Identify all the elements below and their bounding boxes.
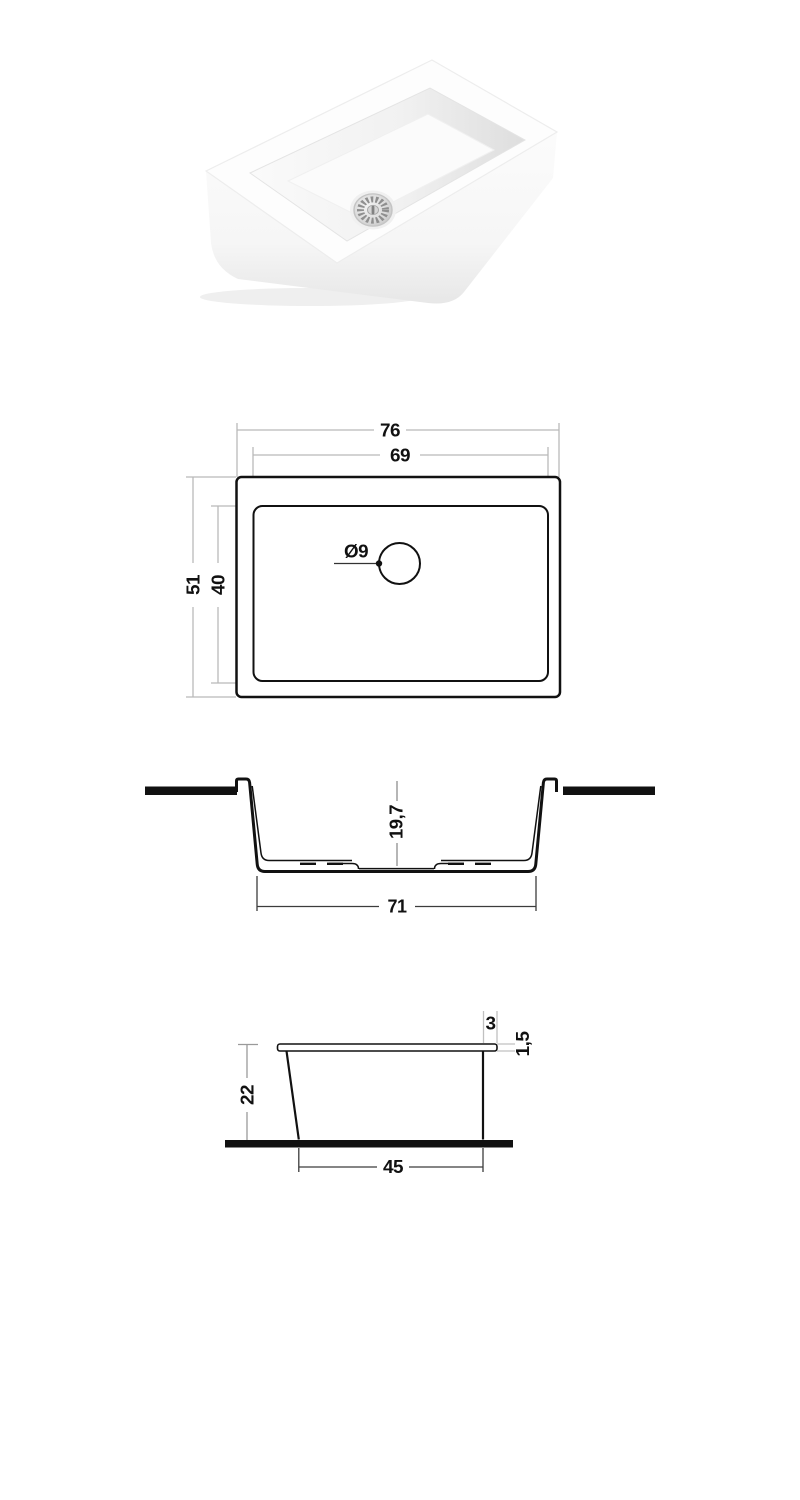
- drain-hole-outline: [379, 543, 420, 584]
- side-view-drawing: 22 3 1,5 45: [225, 1011, 533, 1177]
- top-view-drawing: 76 69 51 40 Ø9: [184, 421, 561, 698]
- drain-leader-dot: [376, 560, 382, 566]
- drawing-canvas: 76 69 51 40 Ø9 19,7 71: [0, 0, 800, 1500]
- countertop-right: [563, 787, 655, 796]
- side-body-outline: [287, 1051, 484, 1140]
- dim-bottom-width-label: 71: [388, 897, 407, 917]
- dim-outer-width-label: 76: [380, 421, 401, 441]
- dim-rim-thickness-label: 1,5: [513, 1031, 533, 1057]
- dim-height-label: 22: [238, 1084, 258, 1105]
- dim-inner-depth-label: 40: [209, 574, 229, 595]
- side-rim-plate: [278, 1044, 498, 1051]
- section-view-drawing: 19,7 71: [145, 779, 655, 917]
- spec-sheet-page: 76 69 51 40 Ø9 19,7 71: [0, 0, 800, 1500]
- dim-basin-depth-label: 19,7: [387, 805, 407, 839]
- side-base-line: [225, 1140, 513, 1148]
- dim-rim-overhang-label: 3: [486, 1014, 497, 1034]
- countertop-left: [145, 787, 237, 796]
- drain-strainer: [350, 190, 396, 229]
- dim-base-width-label: 45: [383, 1157, 404, 1177]
- side-dimensions: 22 3 1,5 45: [238, 1011, 534, 1177]
- product-photo: [200, 60, 557, 306]
- dim-inner-width-label: 69: [390, 446, 411, 466]
- dim-drain-diameter-label: Ø9: [344, 542, 369, 562]
- basin-inner-outline: [254, 506, 549, 681]
- dim-outer-depth-label: 51: [184, 574, 204, 595]
